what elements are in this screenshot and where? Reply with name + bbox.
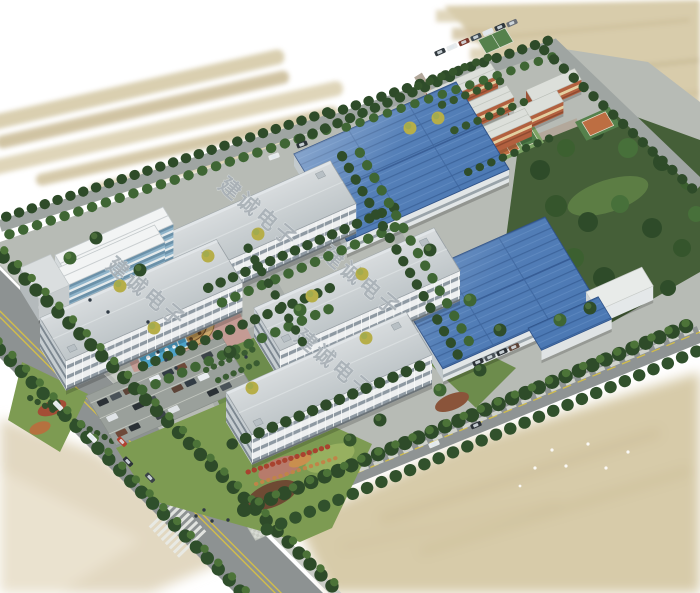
scene-canvas: 建诚电子 建诚电子 — [0, 0, 700, 593]
aerial-rendering: 建诚电子 建诚电子 — [0, 0, 700, 593]
